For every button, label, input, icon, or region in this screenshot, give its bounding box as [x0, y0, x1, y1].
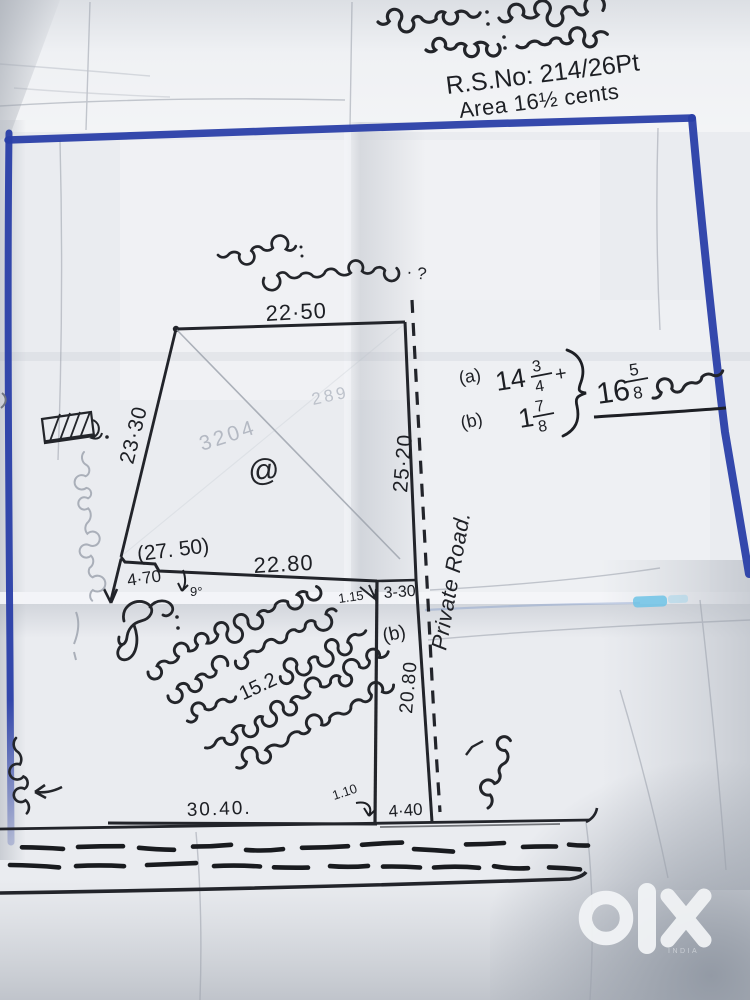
svg-text:16: 16	[594, 374, 632, 411]
svg-text:22.80: 22.80	[253, 550, 314, 578]
svg-text:30.40.: 30.40.	[186, 798, 252, 821]
svg-text:@: @	[247, 451, 281, 489]
svg-text:· ?: · ?	[405, 262, 427, 284]
svg-text:(a): (a)	[457, 364, 482, 388]
svg-text:3-30: 3-30	[383, 583, 416, 602]
svg-text:9°: 9°	[190, 584, 202, 599]
svg-text:4·40: 4·40	[388, 800, 423, 821]
svg-text:INDIA: INDIA	[668, 948, 699, 955]
svg-text:14: 14	[493, 363, 527, 397]
svg-text:22·50: 22·50	[265, 298, 328, 326]
